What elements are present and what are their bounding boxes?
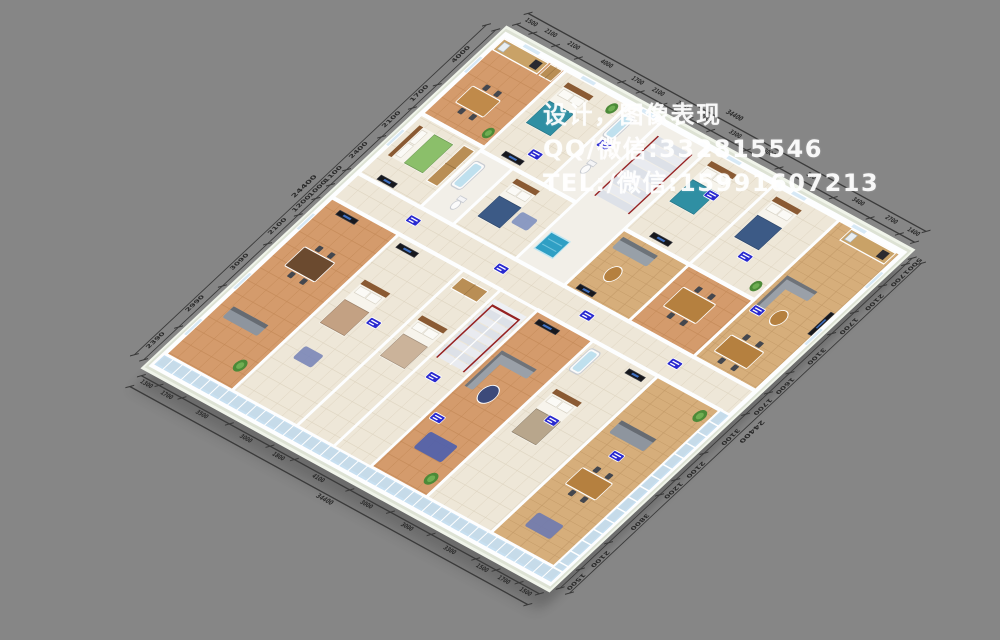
render-canvas: 1500210021004000170021002400200033003000… (0, 0, 1000, 640)
floorplan-scene: 1500210021004000170021002400200033003000… (0, 0, 1000, 640)
